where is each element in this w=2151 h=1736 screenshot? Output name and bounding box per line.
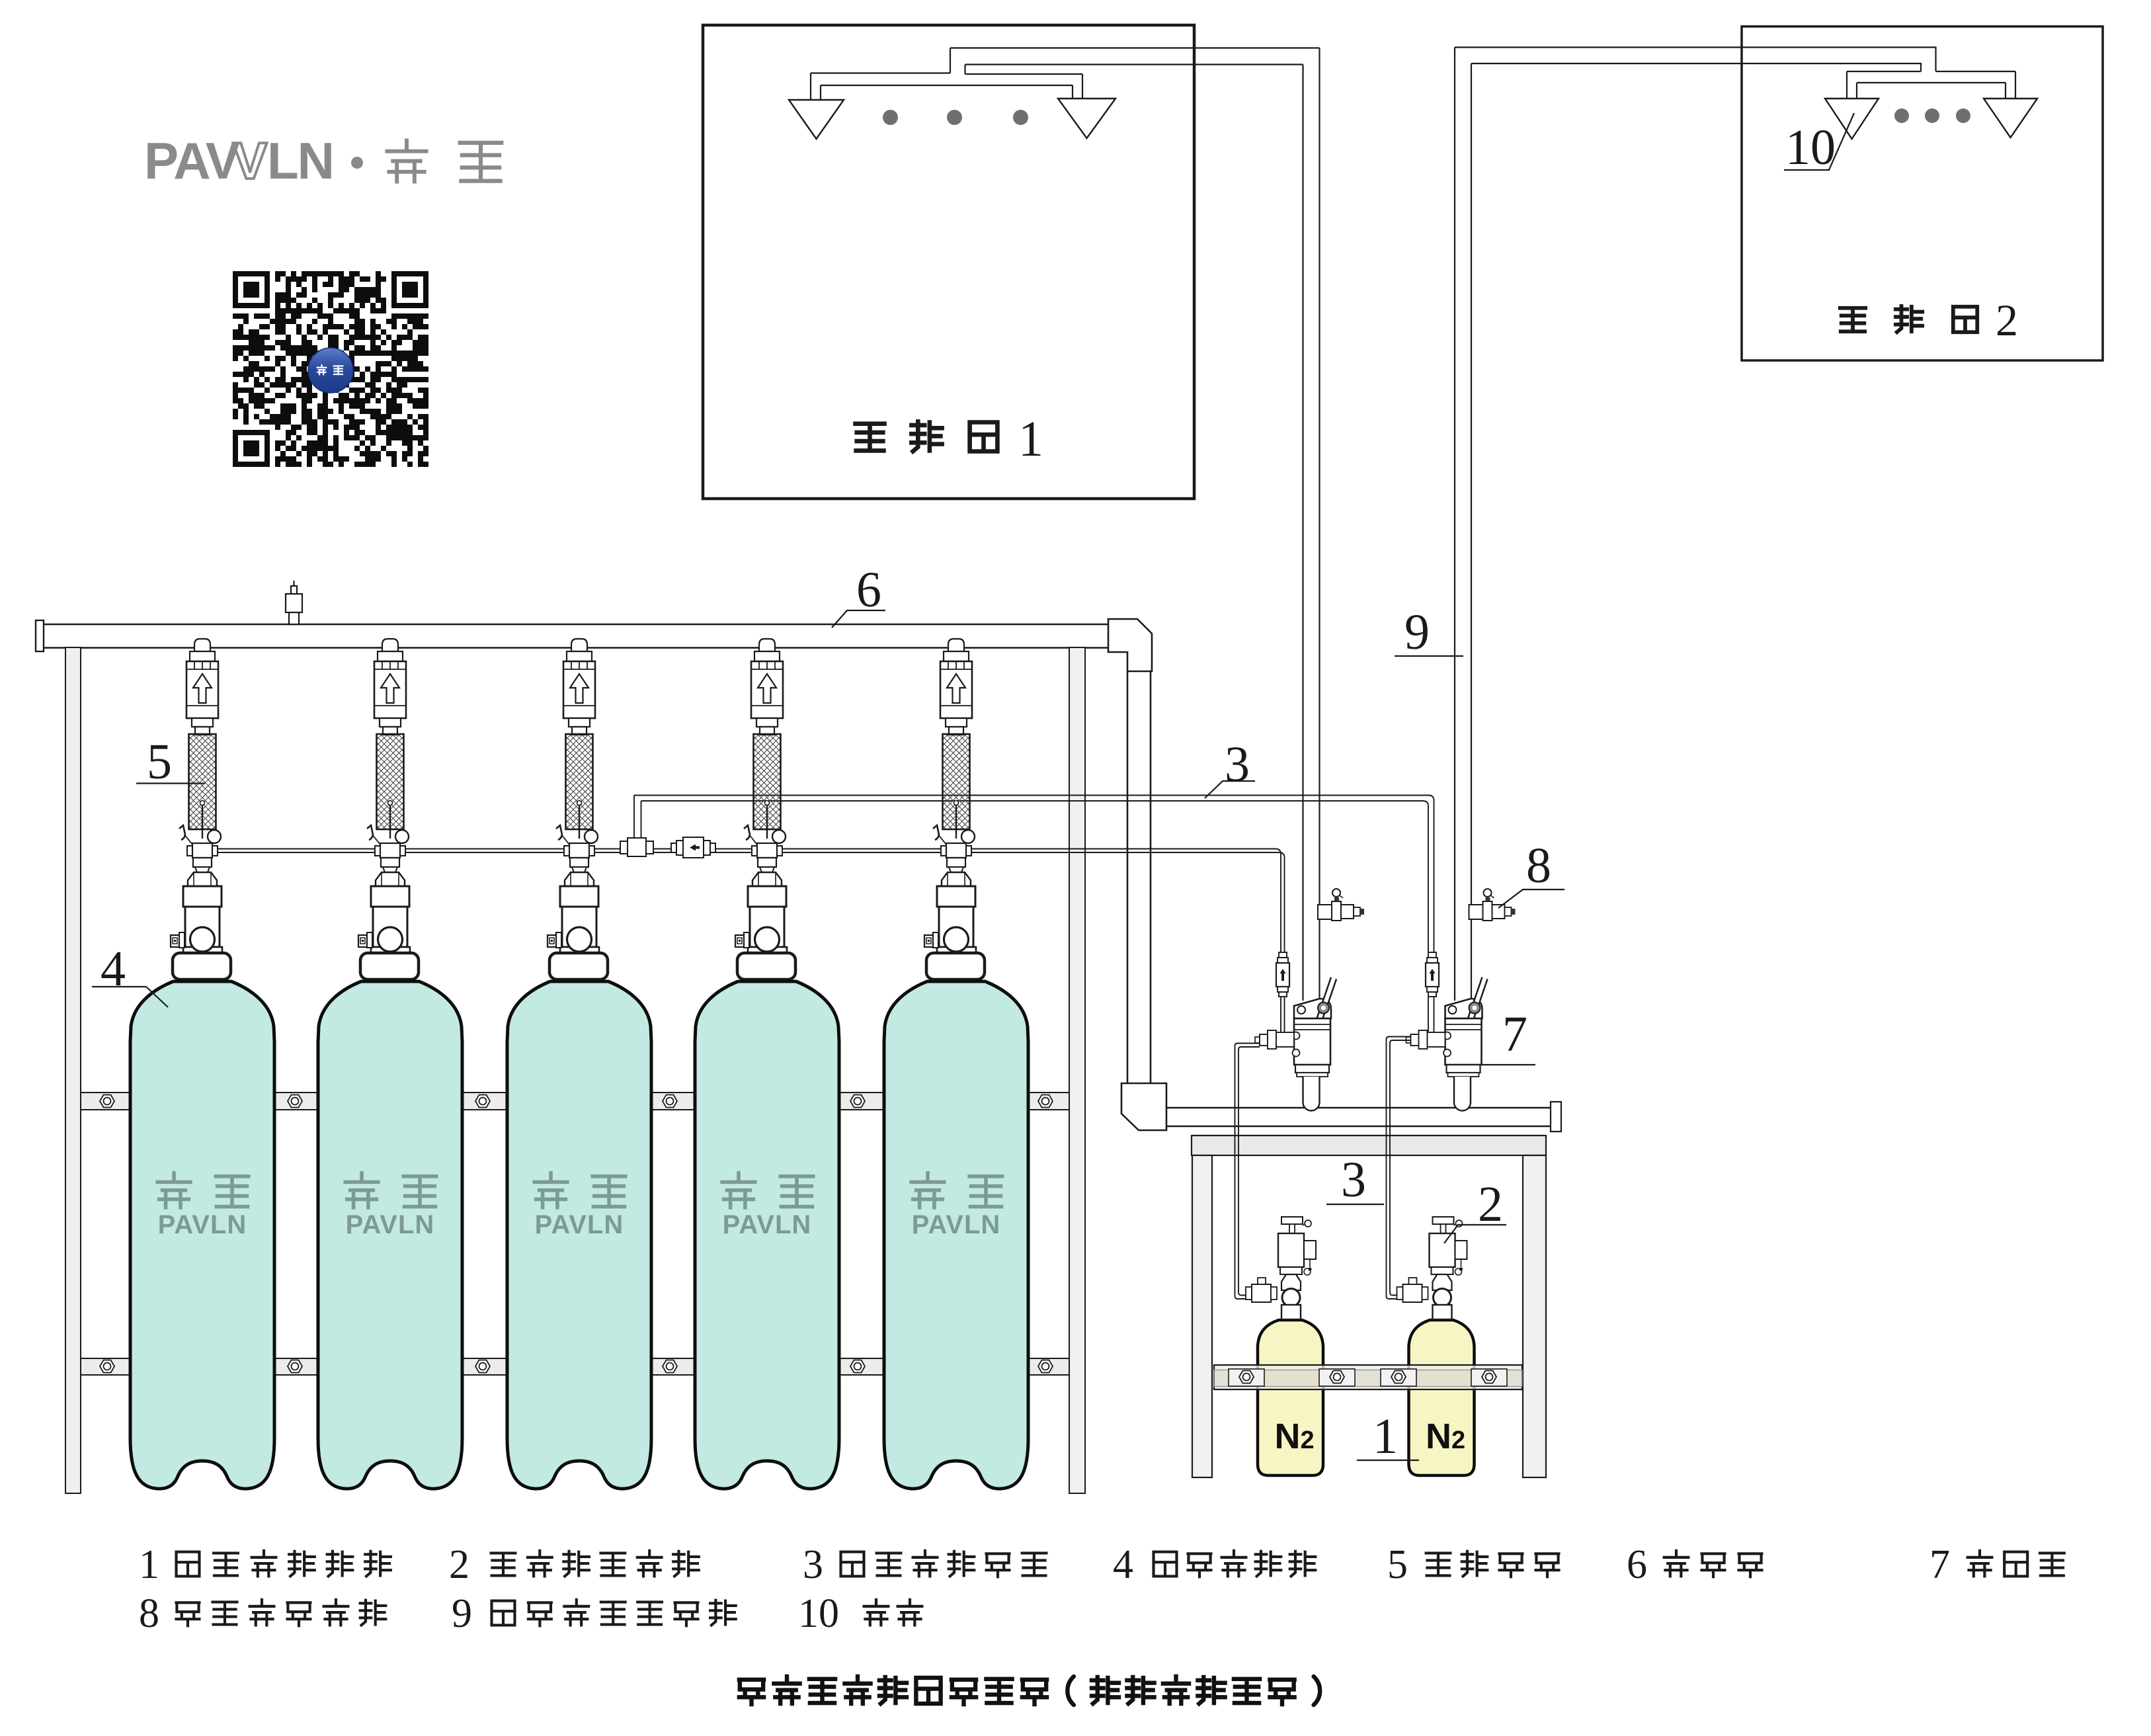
svg-text:2: 2: [1478, 1177, 1503, 1232]
svg-text:10: 10: [798, 1591, 839, 1636]
svg-text:PAV: PAV: [144, 132, 240, 190]
svg-text:1: 1: [139, 1542, 159, 1587]
svg-text:3: 3: [1225, 737, 1250, 792]
svg-text:9: 9: [1404, 604, 1430, 660]
svg-text:3: 3: [803, 1542, 823, 1587]
svg-text:2: 2: [449, 1542, 469, 1587]
svg-text:4: 4: [1113, 1542, 1133, 1587]
svg-text:10: 10: [1785, 120, 1836, 175]
svg-text:7: 7: [1929, 1542, 1950, 1587]
svg-text:8: 8: [139, 1591, 159, 1636]
svg-text:7: 7: [1502, 1007, 1527, 1062]
svg-text:5: 5: [147, 734, 172, 790]
svg-text:8: 8: [1526, 838, 1551, 893]
svg-text:6: 6: [856, 562, 881, 618]
svg-text:4: 4: [101, 941, 126, 997]
svg-text:9: 9: [452, 1591, 472, 1636]
svg-text:2: 2: [1996, 295, 2018, 345]
svg-text:6: 6: [1627, 1542, 1647, 1587]
svg-text:1: 1: [1373, 1409, 1398, 1464]
svg-text:5: 5: [1387, 1542, 1408, 1587]
svg-text:1: 1: [1018, 411, 1043, 467]
svg-text:V: V: [233, 132, 267, 190]
svg-text:3: 3: [1341, 1152, 1366, 1208]
svg-text:LN: LN: [267, 132, 333, 190]
